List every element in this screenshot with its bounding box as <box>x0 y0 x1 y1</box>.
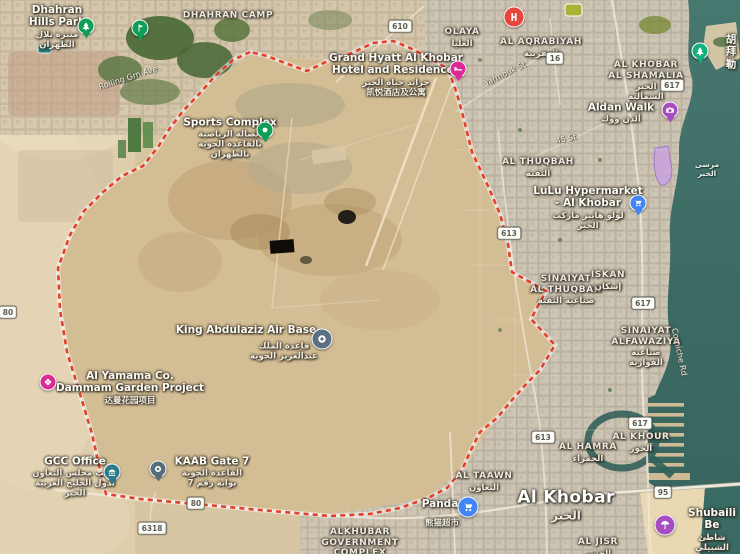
kaab-gate-7-label[interactable]: KAAB Gate 7القاعدة الجوية بوابة رقم 7 <box>175 455 250 488</box>
route-shield-6318: 6318 <box>138 522 167 535</box>
corniche-tree-pin[interactable] <box>692 43 709 60</box>
gcc-office-pin[interactable] <box>104 464 121 481</box>
lulu-hypermarket-label[interactable]: LuLu Hypermarket - Al Khobarلولو هايبر م… <box>533 185 642 231</box>
panda-pin[interactable] <box>458 497 479 518</box>
golf-icon <box>136 24 145 33</box>
tree-icon <box>82 22 91 31</box>
shubaili-beach-label[interactable]: Shubaili Beشاطئ الشبيلي <box>688 507 736 553</box>
bed-icon <box>454 65 463 74</box>
cart-icon <box>463 502 474 513</box>
panda-label[interactable]: Panda <box>422 498 459 510</box>
hubail-cn-label[interactable]: 胡拜勒 <box>726 33 737 70</box>
grand-hyatt-label[interactable]: Grand Hyatt Al Khobar Hotel and Residenc… <box>329 52 463 98</box>
map-overlay: Dhahran Hills Parkمنتزه تلال الظهرانDHAH… <box>0 0 740 554</box>
al-khobar-city-label: Al Khobarالخبر <box>517 487 614 522</box>
aldan-walk-label[interactable]: Aldan Walkألدن ووك <box>588 101 654 124</box>
al-khour-label: AL KHOURالخور <box>612 432 669 454</box>
al-jisr-label: AL JISRالجسر <box>578 537 618 554</box>
shubaili-beach-pin[interactable] <box>655 515 676 536</box>
bank-icon <box>108 468 117 477</box>
beach-icon <box>660 520 671 531</box>
kaab-gate-pin[interactable] <box>150 461 167 478</box>
route-shield-617: 617 <box>628 417 652 430</box>
al-hamra-label: AL HAMRAالحمراء <box>559 442 617 464</box>
route-shield-95: 95 <box>654 486 672 499</box>
al-taawn-label: AL TAAWNالتعاون <box>455 471 512 493</box>
king-abdulaziz-air-base-label[interactable]: King Abdulaziz Air Base <box>176 324 316 336</box>
al-thuqbah-label: AL THUQBAHالثقبة <box>502 157 574 179</box>
ring-icon <box>317 334 328 345</box>
olaya-label: OLAYAالعليا <box>444 27 479 49</box>
cart-icon <box>634 199 643 208</box>
rolling-grn-ave-label: Rolling Grn Ave <box>97 64 158 92</box>
hospital-pin[interactable] <box>504 7 525 28</box>
lulu-hypermarket-pin[interactable] <box>630 195 647 212</box>
camera-icon <box>666 106 675 115</box>
alkhubar-government-complex-label: ALKHUBAR GOVERNMENT COMPLEX <box>321 527 398 554</box>
route-shield-617: 617 <box>660 79 684 92</box>
al-yamama-project-label[interactable]: Al Yamama Co. Dammam Garden Project达曼花园项… <box>56 370 204 406</box>
al-yamama-pin[interactable] <box>40 374 57 391</box>
dhahran-camp-label: DHAHRAN CAMP <box>183 11 273 22</box>
golf-course-pin[interactable] <box>132 20 149 37</box>
route-shield-610: 610 <box>388 20 412 33</box>
route-shield-80: 80 <box>0 306 17 319</box>
route-shield-16: 16 <box>546 52 564 65</box>
grand-hyatt-pin[interactable] <box>450 61 467 78</box>
khobar-marina-ar-label: مرسى الخبر <box>691 161 724 179</box>
route-shield-613: 613 <box>531 431 555 444</box>
hletter-icon <box>509 12 520 23</box>
dot-icon <box>261 126 270 135</box>
route-shield-613: 613 <box>497 227 521 240</box>
aldan-walk-pin[interactable] <box>662 102 679 119</box>
45-st-label: 45 St <box>555 132 577 146</box>
route-shield-617: 617 <box>631 297 655 310</box>
satellite-map[interactable]: Dhahran Hills Parkمنتزه تلال الظهرانDHAH… <box>0 0 740 554</box>
sports-complex-pin[interactable] <box>257 122 274 139</box>
ring-icon <box>154 465 163 474</box>
yarmouk-st-label: Yarmouk St <box>483 60 528 88</box>
air-base-pin[interactable] <box>312 329 333 350</box>
al-aqrabiyah-label: AL AQRABIYAHالعقربية <box>500 37 582 59</box>
flower-icon <box>44 378 53 387</box>
iskan-label: ISKANإسكان <box>591 270 625 292</box>
dhahran-hills-park-pin[interactable] <box>78 18 95 35</box>
route-shield-80: 80 <box>187 497 205 510</box>
tree-icon <box>696 47 705 56</box>
panda-cn-label: 熊猫超市 <box>425 517 459 528</box>
king-abdulaziz-air-base-ar-label: قاعدة الملك عبدالعزيز الجوية <box>250 340 318 361</box>
